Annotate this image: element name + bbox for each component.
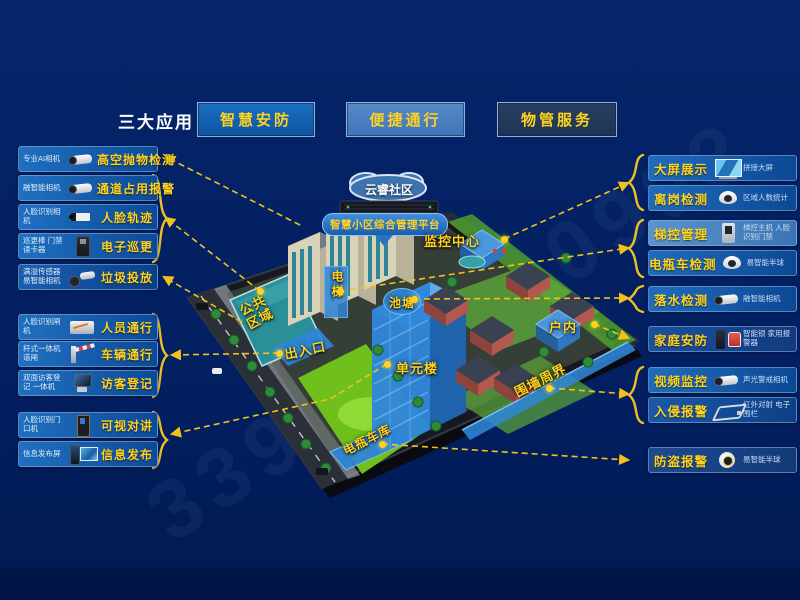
feature-label: 访客登记 (97, 375, 157, 392)
device-label: 区域人数统计 (743, 194, 796, 203)
panel-item-lane-occupancy: 融智能相机 通道占用报警 (18, 175, 158, 201)
panel-item-high-altitude-throw: 专业AI相机 高空抛物检测 (18, 146, 158, 172)
info-screen-icon (67, 443, 97, 465)
map-label-indoor: 户内 (549, 317, 577, 336)
bullet-camera-icon (67, 177, 97, 199)
dome-camera-icon (717, 252, 747, 274)
device-label: 声光警戒相机 (743, 376, 796, 385)
server-icon (340, 201, 438, 213)
panel-item-home-security: 家庭安防 智能锁 家用报警器 (648, 326, 797, 352)
device-label: 人脸识别门口机 (19, 416, 67, 433)
map-label-unit-building: 单元楼 (396, 358, 438, 377)
panel-item-visitor-registration: 双面访客登记 一体机 访客登记 (18, 370, 158, 396)
device-label: 红外对射 电子围栏 (743, 401, 796, 418)
feature-label: 离岗检测 (649, 189, 713, 208)
bullet-camera-icon (713, 288, 743, 310)
panel-item-elevator-control: 梯控管理 梯控主机 人脸识别门禁 (648, 220, 797, 246)
map-node-dot (546, 385, 553, 392)
map-node-dot (501, 236, 508, 243)
tab-property-service[interactable]: 物管服务 (497, 102, 617, 137)
map-label-monitor-center: 监控中心 (424, 231, 480, 250)
feature-label: 通道占用报警 (97, 180, 175, 197)
feature-label: 梯控管理 (649, 224, 713, 243)
device-label: 梯控主机 人脸识别门禁 (743, 224, 796, 241)
device-label: 双面访客登记 一体机 (19, 374, 67, 391)
map-node-dot (411, 296, 418, 303)
bullet-camera-icon (67, 148, 97, 170)
map-node-dot (276, 350, 283, 357)
panel-item-garbage-drop: 满溢传感器 易智能相机 垃圾投放 (18, 264, 158, 290)
warning-camera-icon (713, 369, 743, 391)
panel-item-video-surveillance: 视频监控 声光警戒相机 (648, 367, 797, 393)
device-label: 易智能半球 (743, 456, 796, 465)
device-label: 信息发布屏 (19, 450, 67, 459)
map-label-elevator: 电梯 (329, 270, 346, 300)
panel-item-burglar-alarm: 防盗报警 易智能半球 (648, 447, 797, 473)
cloud-community-label: 云睿社区 (352, 181, 426, 198)
panel-item-pedestrian-access: 人脸识别闸机 人员通行 (18, 314, 158, 340)
map-node-dot (379, 441, 386, 448)
panel-item-intrusion-alarm: 入侵报警 红外对射 电子围栏 (648, 397, 797, 423)
map-node-dot (257, 288, 264, 295)
sensor-camera-icon (67, 266, 97, 288)
panel-item-video-wall: 大屏展示 拼接大屏 (648, 155, 797, 181)
panel-item-vehicle-access: 杆式一体机 道闸 车辆通行 (18, 341, 158, 367)
device-label: 拼接大屏 (743, 164, 796, 173)
panel-item-video-intercom: 人脸识别门口机 可视对讲 (18, 412, 158, 438)
feature-label: 人脸轨迹 (97, 209, 157, 226)
electronic-fence-icon (713, 399, 743, 421)
panel-item-absence-detection: 离岗检测 区域人数统计 (648, 185, 797, 211)
access-reader-icon (67, 235, 97, 257)
panel-item-drowning-detection: 落水检测 融智能相机 (648, 286, 797, 312)
feature-label: 可视对讲 (97, 417, 157, 434)
elevator-controller-icon (713, 222, 743, 244)
device-label: 专业AI相机 (19, 155, 67, 164)
feature-label: 高空抛物检测 (97, 151, 175, 168)
visitor-kiosk-icon (67, 372, 97, 394)
feature-label: 电子巡更 (97, 238, 157, 255)
feature-label: 大屏展示 (649, 159, 713, 178)
turnstile-icon (67, 316, 97, 338)
map-node-dot (337, 288, 344, 295)
panel-item-e-patrol: 巡更棒 门禁读卡器 电子巡更 (18, 233, 158, 259)
tab-smart-security[interactable]: 智慧安防 (197, 102, 315, 137)
device-label: 巡更棒 门禁读卡器 (19, 237, 67, 254)
panel-item-ebike-detection: 电瓶车检测 易智能半球 (648, 250, 797, 276)
feature-label: 家庭安防 (649, 330, 713, 349)
video-wall-icon (713, 157, 743, 179)
panel-item-info-publish: 信息发布屏 信息发布 (18, 441, 158, 467)
feature-label: 车辆通行 (97, 346, 157, 363)
device-label: 融智能相机 (743, 295, 796, 304)
device-label: 人脸识别相机 (19, 208, 67, 225)
panel-item-face-track: 人脸识别相机 人脸轨迹 (18, 204, 158, 230)
device-label: 融智能相机 (19, 184, 67, 193)
barrier-gate-icon (67, 343, 97, 365)
device-label: 智能锁 家用报警器 (743, 330, 796, 347)
box-camera-icon (67, 206, 97, 228)
device-label: 杆式一体机 道闸 (19, 345, 67, 362)
smart-lock-alarm-icon (713, 328, 743, 350)
feature-label: 入侵报警 (649, 401, 713, 420)
feature-label: 视频监控 (649, 371, 713, 390)
tab-convenient-access[interactable]: 便捷通行 (346, 102, 465, 137)
map-node-dot (384, 361, 391, 368)
feature-label: 防盗报警 (649, 451, 713, 470)
section-title: 三大应用 (118, 108, 194, 133)
feature-label: 落水检测 (649, 290, 713, 309)
feature-label: 电瓶车检测 (649, 254, 717, 273)
map-node-dot (591, 321, 598, 328)
device-label: 满溢传感器 易智能相机 (19, 268, 67, 285)
dome-camera-icon (713, 187, 743, 209)
door-intercom-icon (67, 414, 97, 436)
turret-camera-icon (713, 449, 743, 471)
smart-community-diagram: 339-6202-0902 (0, 0, 800, 600)
feature-label: 信息发布 (97, 446, 157, 463)
device-label: 人脸识别闸机 (19, 318, 67, 335)
device-label: 易智能半球 (747, 259, 800, 268)
feature-label: 垃圾投放 (97, 269, 157, 286)
feature-label: 人员通行 (97, 319, 157, 336)
